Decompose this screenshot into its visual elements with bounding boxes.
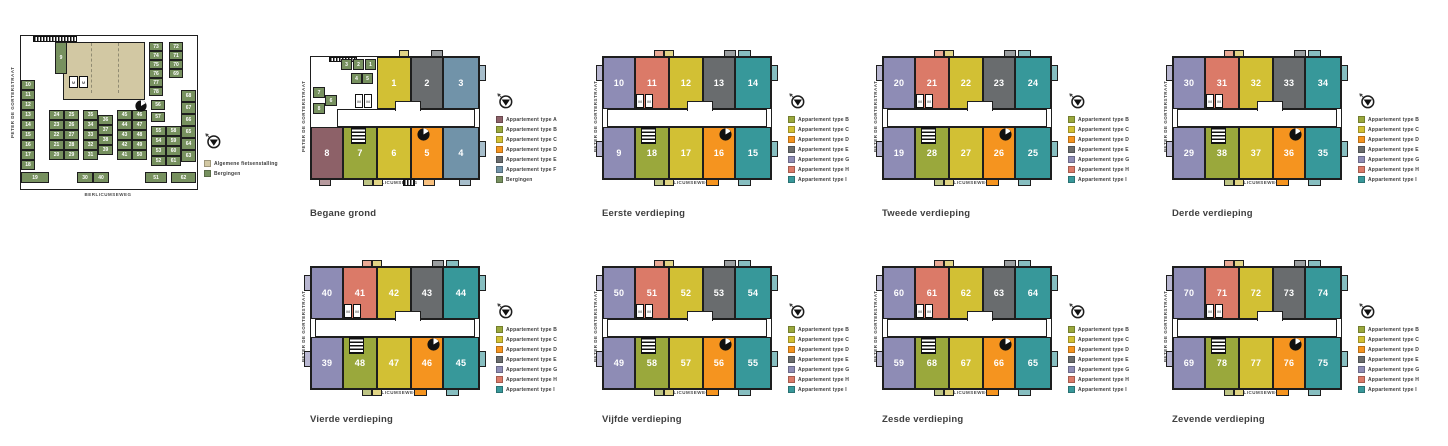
- legend-swatch: [1358, 336, 1365, 343]
- elevator-icon: [999, 128, 1012, 141]
- legend-item: Appartement type B: [1068, 326, 1129, 333]
- balcony-tab: [664, 260, 674, 267]
- legend-item: Appartement type H: [496, 376, 557, 383]
- legend-item: Appartement type G: [1358, 156, 1419, 163]
- balcony-tab: [1294, 260, 1306, 267]
- storage-cell: 74: [149, 51, 163, 60]
- legend-item: Appartement type G: [788, 366, 849, 373]
- legend-swatch: [788, 116, 795, 123]
- meter-box: M: [925, 304, 933, 318]
- floorplan-body: 70717273746978777675MM: [1172, 266, 1342, 390]
- legend-swatch: [1068, 166, 1075, 173]
- spiral-stair-icon: [1289, 338, 1302, 351]
- balcony-tab: [1051, 275, 1058, 291]
- storage-cell: 10: [21, 80, 35, 90]
- storage-cell: 3: [341, 59, 352, 70]
- north-compass: [1358, 92, 1375, 109]
- legend-swatch: [204, 170, 211, 177]
- spiral-stair-icon: [999, 128, 1012, 141]
- apartment-unit: 8: [311, 127, 343, 179]
- legend-label: Appartement type C: [506, 137, 557, 143]
- storage-cell: 11: [21, 90, 35, 100]
- legend-label: Appartement type F: [506, 167, 557, 173]
- balcony-tab: [1234, 389, 1244, 396]
- corridor: [887, 319, 1047, 337]
- north-compass-icon: [496, 302, 513, 319]
- stairwell-icon: [641, 337, 656, 354]
- legend-swatch: [1068, 156, 1075, 163]
- balcony-tab: [362, 260, 372, 267]
- legend-swatch: [496, 386, 503, 393]
- storage-cell: 56: [151, 100, 165, 110]
- meter-box: M: [1206, 94, 1214, 108]
- apartment-unit: 54: [735, 267, 771, 319]
- bike-rack-hatch: [403, 179, 415, 186]
- legend-label: Appartement type I: [1078, 177, 1127, 183]
- balcony-tab: [654, 50, 664, 57]
- legend-swatch: [788, 346, 795, 353]
- balcony-tab: [738, 389, 751, 396]
- storage-cell: 9: [55, 42, 67, 74]
- legend-label: Appartement type G: [798, 367, 849, 373]
- legend-swatch: [1068, 376, 1075, 383]
- legend-label: Appartement type H: [1368, 377, 1419, 383]
- balcony-tab: [1234, 50, 1244, 57]
- legend-label: Appartement type H: [1078, 167, 1129, 173]
- stairwell-icon: [1211, 127, 1226, 144]
- legend-label: Appartement type H: [1368, 167, 1419, 173]
- storage-cell: 61: [166, 156, 181, 166]
- storage-cell: 23: [49, 120, 64, 130]
- balcony-tab: [986, 179, 999, 186]
- corridor: [315, 319, 475, 337]
- legend-item: Appartement type E: [1358, 146, 1419, 153]
- balcony-tab: [934, 50, 944, 57]
- legend-item: Appartement type C: [1068, 126, 1129, 133]
- legend-label: Appartement type C: [798, 337, 849, 343]
- balcony-tab: [876, 275, 883, 291]
- balcony-tab: [373, 179, 383, 186]
- plan-title: Begane grond: [310, 208, 376, 219]
- legend-label: Appartement type H: [506, 377, 557, 383]
- apartment-unit: 47: [377, 337, 411, 389]
- balcony-tab: [596, 65, 603, 81]
- storage-cell: 68: [181, 90, 196, 102]
- legend-swatch: [788, 156, 795, 163]
- legend-item: Appartement type H: [788, 376, 849, 383]
- legend: Appartement type BAppartement type CAppa…: [788, 116, 849, 183]
- apartment-unit: 17: [669, 127, 703, 179]
- balcony-tab: [944, 260, 954, 267]
- legend-item: Appartement type I: [788, 386, 849, 393]
- legend: Appartement type BAppartement type CAppa…: [1068, 326, 1129, 393]
- legend-item: Appartement type B: [1068, 116, 1129, 123]
- legend-label: Bergingen: [506, 177, 533, 183]
- storage-cell: 49: [132, 140, 147, 150]
- apartment-unit: 50: [603, 267, 635, 319]
- meter-box: M: [364, 94, 372, 108]
- street-label-left: PETER DE GORTERSTRAAT: [10, 67, 15, 138]
- legend-label: Appartement type B: [506, 327, 557, 333]
- legend-label: Appartement type D: [1368, 137, 1419, 143]
- balcony-tab: [459, 179, 471, 186]
- legend-label: Appartement type I: [798, 177, 847, 183]
- floorplans-overview-page: PETER DE GORTERSTRAATBERLICUMSEWEGAlgeme…: [0, 0, 1448, 446]
- north-compass-icon: [496, 92, 513, 109]
- legend-swatch: [1068, 336, 1075, 343]
- balcony-tab: [771, 275, 778, 291]
- legend-item: Appartement type E: [788, 146, 849, 153]
- balcony-tab: [1166, 141, 1173, 157]
- storage-cell: 7: [313, 87, 325, 98]
- street-label-bottom: BERLICUMSEWEG: [310, 180, 478, 185]
- legend-swatch: [496, 156, 503, 163]
- legend-item: Appartement type D: [1068, 136, 1129, 143]
- storage-cell: 73: [149, 42, 163, 51]
- apartment-unit: 6: [377, 127, 411, 179]
- stairwell-icon: [1211, 337, 1226, 354]
- legend-label: Appartement type D: [798, 137, 849, 143]
- legend-label: Appartement type E: [506, 157, 557, 163]
- balcony-tab: [1308, 179, 1321, 186]
- legend-swatch: [1068, 136, 1075, 143]
- balcony-tab: [724, 50, 736, 57]
- legend-item: Appartement type C: [788, 126, 849, 133]
- legend-label: Appartement type B: [798, 327, 849, 333]
- balcony-tab: [1224, 50, 1234, 57]
- plan-zevende-verdieping: PETER DE GORTERSTRAATBERLICUMSEWEGAppart…: [1162, 248, 1438, 446]
- plan-tweede-verdieping: PETER DE GORTERSTRAATBERLICUMSEWEGAppart…: [872, 32, 1148, 242]
- legend-item: Appartement type D: [496, 146, 557, 153]
- storage-cell: 40: [93, 172, 109, 183]
- meter-box: M: [1206, 304, 1214, 318]
- apartment-unit: 14: [735, 57, 771, 109]
- north-compass: [1358, 302, 1375, 319]
- elevator-icon: [427, 338, 440, 351]
- apartment-unit: 4: [443, 127, 479, 179]
- elevator-icon: [999, 338, 1012, 351]
- legend-swatch: [1358, 156, 1365, 163]
- corridor: [1177, 109, 1337, 127]
- legend-swatch: [788, 176, 795, 183]
- legend-item: Appartement type E: [1068, 356, 1129, 363]
- balcony-tab: [664, 50, 674, 57]
- apartment-unit: 45: [443, 337, 479, 389]
- north-compass: [1068, 302, 1085, 319]
- storage-cell: 42: [117, 140, 132, 150]
- storage-cell: 32: [83, 140, 98, 150]
- balcony-tab: [934, 260, 944, 267]
- storage-cell: 44: [117, 120, 132, 130]
- floorplan-body: 60616263645968676665MM: [882, 266, 1052, 390]
- storage-cell: 28: [64, 140, 79, 150]
- street-label-bottom: BERLICUMSEWEG: [20, 192, 196, 197]
- floorplan-body: 1011121314918171615MM: [602, 56, 772, 180]
- balcony-tab: [431, 50, 443, 57]
- balcony-tab: [1166, 275, 1173, 291]
- apartment-unit: 65: [1015, 337, 1051, 389]
- divider: [118, 43, 119, 93]
- balcony-tab: [372, 260, 382, 267]
- apartment-unit: 49: [603, 337, 635, 389]
- balcony-tab: [876, 65, 883, 81]
- storage-cell: 15: [21, 130, 35, 140]
- north-compass-icon: [1068, 302, 1085, 319]
- storage-cell: 50: [132, 150, 147, 160]
- legend-item: Appartement type E: [788, 356, 849, 363]
- legend-swatch: [1068, 386, 1075, 393]
- legend-label: Appartement type E: [506, 357, 557, 363]
- storage-cell: 13: [21, 110, 35, 120]
- balcony-tab: [1018, 179, 1031, 186]
- balcony-tab: [706, 179, 719, 186]
- legend-item: Appartement type D: [1068, 346, 1129, 353]
- corridor-hall: [687, 311, 713, 321]
- apartment-unit: 25: [1015, 127, 1051, 179]
- balcony-tab: [1051, 351, 1058, 367]
- meter-box: M: [69, 76, 78, 88]
- legend-label: Appartement type E: [1368, 357, 1419, 363]
- storage-cell: 8: [313, 103, 325, 114]
- corridor-hall: [395, 101, 421, 111]
- corridor-hall: [967, 311, 993, 321]
- apartment-unit: 37: [1239, 127, 1273, 179]
- legend: Appartement type AAppartement type BAppa…: [496, 116, 557, 183]
- storage-cell: 17: [21, 150, 35, 160]
- elevator-icon: [417, 128, 430, 141]
- corridor-hall: [395, 311, 421, 321]
- plan-title: Vierde verdieping: [310, 414, 393, 425]
- legend-item: Appartement type E: [496, 356, 557, 363]
- legend-swatch: [788, 136, 795, 143]
- balcony-tab: [654, 389, 664, 396]
- legend-item: Appartement type C: [1358, 336, 1419, 343]
- storageplan-body: 9MM1011121314151617181924232221202526272…: [20, 35, 198, 190]
- legend-swatch: [1068, 346, 1075, 353]
- balcony-tab: [771, 351, 778, 367]
- north-compass: [1068, 92, 1085, 109]
- storage-cell: 70: [169, 60, 183, 69]
- legend-swatch: [788, 166, 795, 173]
- legend-swatch: [204, 160, 211, 167]
- floorplan-body: 20212223241928272625MM: [882, 56, 1052, 180]
- north-compass-icon: [1068, 92, 1085, 109]
- legend-label: Appartement type C: [1368, 337, 1419, 343]
- storage-cell: 37: [98, 125, 113, 135]
- balcony-tab: [1224, 389, 1234, 396]
- legend-label: Algemene fietsenstalling: [214, 161, 278, 167]
- street-label-left: PETER DE GORTERSTRAAT: [301, 81, 306, 152]
- legend-label: Appartement type E: [798, 357, 849, 363]
- legend-swatch: [496, 376, 503, 383]
- balcony-tab: [876, 351, 883, 367]
- legend-label: Appartement type C: [1078, 337, 1129, 343]
- legend: Algemene fietsenstallingBergingen: [204, 160, 278, 177]
- balcony-tab: [1294, 50, 1306, 57]
- legend-swatch: [788, 336, 795, 343]
- legend-label: Appartement type E: [1368, 147, 1419, 153]
- legend-item: Appartement type H: [1358, 166, 1419, 173]
- legend-swatch: [1358, 116, 1365, 123]
- legend-swatch: [1068, 176, 1075, 183]
- apartment-unit: 69: [1173, 337, 1205, 389]
- legend-item: Appartement type G: [1068, 156, 1129, 163]
- balcony-tab: [1004, 260, 1016, 267]
- storage-cell: 47: [132, 120, 147, 130]
- storage-cell: 58: [166, 126, 181, 136]
- legend-swatch: [496, 146, 503, 153]
- storage-cell: 20: [49, 150, 64, 160]
- stairwell-icon: [641, 127, 656, 144]
- storage-cell: 19: [21, 172, 49, 183]
- divider: [91, 43, 92, 93]
- meter-box: M: [925, 94, 933, 108]
- meter-box: M: [636, 304, 644, 318]
- balcony-tab: [876, 141, 883, 157]
- balcony-tab: [479, 351, 486, 367]
- legend-item: Appartement type G: [496, 366, 557, 373]
- apartment-unit: 57: [669, 337, 703, 389]
- legend-label: Appartement type I: [798, 387, 847, 393]
- north-compass: [788, 92, 805, 109]
- legend-label: Appartement type B: [1078, 327, 1129, 333]
- balcony-tab: [944, 389, 954, 396]
- floorplan-body: 40414243443948474645MM: [310, 266, 480, 390]
- north-compass-icon: [788, 302, 805, 319]
- apartment-unit: 27: [949, 127, 983, 179]
- storage-cell: 62: [171, 172, 196, 183]
- balcony-tab: [414, 389, 427, 396]
- stairwell-icon: [921, 337, 936, 354]
- meter-box: M: [1215, 304, 1223, 318]
- legend-item: Appartement type E: [1358, 356, 1419, 363]
- legend-item: Appartement type C: [496, 336, 557, 343]
- legend-swatch: [496, 356, 503, 363]
- legend: Appartement type BAppartement type CAppa…: [1358, 116, 1419, 183]
- north-compass: [788, 302, 805, 319]
- storage-cell: 72: [169, 42, 183, 51]
- storage-cell: 52: [151, 156, 166, 166]
- legend-item: Appartement type B: [496, 126, 557, 133]
- apartment-unit: 34: [1305, 57, 1341, 109]
- balcony-tab: [738, 50, 751, 57]
- storage-cell: 60: [166, 146, 181, 156]
- legend-swatch: [788, 326, 795, 333]
- legend-swatch: [1358, 136, 1365, 143]
- balcony-tab: [664, 179, 674, 186]
- corridor-hall: [1257, 311, 1283, 321]
- legend-label: Appartement type I: [1078, 387, 1127, 393]
- apartment-unit: 29: [1173, 127, 1205, 179]
- legend-swatch: [788, 126, 795, 133]
- legend-item: Appartement type B: [1358, 326, 1419, 333]
- legend-item: Appartement type H: [788, 166, 849, 173]
- legend-swatch: [788, 376, 795, 383]
- meter-box: M: [636, 94, 644, 108]
- storage-cell: 39: [98, 145, 113, 155]
- legend-item: Appartement type F: [496, 166, 557, 173]
- apartment-unit: 24: [1015, 57, 1051, 109]
- apartment-unit: 44: [443, 267, 479, 319]
- legend-swatch: [1358, 326, 1365, 333]
- legend-label: Appartement type B: [1078, 117, 1129, 123]
- legend: Appartement type BAppartement type CAppa…: [1358, 326, 1419, 393]
- storage-cell: 45: [117, 110, 132, 120]
- balcony-tab: [1234, 179, 1244, 186]
- legend-swatch: [1068, 146, 1075, 153]
- legend-label: Appartement type D: [798, 347, 849, 353]
- legend-swatch: [1358, 356, 1365, 363]
- stairwell-icon: [349, 337, 364, 354]
- legend-item: Appartement type I: [788, 176, 849, 183]
- apartment-unit: 20: [883, 57, 915, 109]
- legend: Appartement type BAppartement type CAppa…: [1068, 116, 1129, 183]
- legend-item: Appartement type D: [788, 136, 849, 143]
- legend-swatch: [788, 366, 795, 373]
- storage-cell: 75: [149, 60, 163, 69]
- balcony-tab: [1051, 141, 1058, 157]
- legend-swatch: [1358, 146, 1365, 153]
- plan-begane-grond: PETER DE GORTERSTRAATBERLICUMSEWEGAppart…: [300, 32, 576, 242]
- storage-cell: 48: [132, 130, 147, 140]
- legend-item: Appartement type I: [1358, 176, 1419, 183]
- storage-cell: 41: [117, 150, 132, 160]
- legend-item: Appartement type A: [496, 116, 557, 123]
- legend-item: Appartement type G: [1358, 366, 1419, 373]
- storage-cell: 53: [151, 146, 166, 156]
- legend-label: Appartement type I: [506, 387, 555, 393]
- balcony-tab: [446, 389, 459, 396]
- legend-swatch: [788, 146, 795, 153]
- meter-box: M: [645, 304, 653, 318]
- storage-cell: 69: [169, 69, 183, 78]
- storage-cell: 25: [64, 110, 79, 120]
- legend-item: Appartement type G: [788, 156, 849, 163]
- plan-zesde-verdieping: PETER DE GORTERSTRAATBERLICUMSEWEGAppart…: [872, 248, 1148, 446]
- legend-item: Appartement type B: [788, 116, 849, 123]
- balcony-tab: [654, 179, 664, 186]
- meter-box: M: [916, 304, 924, 318]
- legend-item: Appartement type B: [496, 326, 557, 333]
- spiral-stair-icon: [417, 128, 430, 141]
- legend-swatch: [1358, 176, 1365, 183]
- elevator-icon: [719, 338, 732, 351]
- storage-cell: 63: [181, 150, 196, 162]
- balcony-tab: [1051, 65, 1058, 81]
- balcony-tab: [1224, 260, 1234, 267]
- legend-item: Appartement type E: [496, 156, 557, 163]
- apartment-unit: 15: [735, 127, 771, 179]
- stairwell-icon: [921, 127, 936, 144]
- storage-cell: 54: [151, 136, 166, 146]
- balcony-tab: [944, 179, 954, 186]
- apartment-unit: 64: [1015, 267, 1051, 319]
- storage-cell: 30: [77, 172, 93, 183]
- legend-label: Appartement type H: [798, 167, 849, 173]
- legend-label: Appartement type C: [506, 337, 557, 343]
- legend-label: Appartement type E: [1078, 357, 1129, 363]
- north-compass-icon: [204, 132, 221, 149]
- corridor: [607, 109, 767, 127]
- balcony-tab: [771, 141, 778, 157]
- legend-label: Appartement type B: [798, 117, 849, 123]
- balcony-tab: [1018, 389, 1031, 396]
- bike-parking-area: [63, 42, 145, 100]
- apartment-unit: 75: [1305, 337, 1341, 389]
- apartment-unit: 30: [1173, 57, 1205, 109]
- meter-box: M: [79, 76, 88, 88]
- apartment-unit: 19: [883, 127, 915, 179]
